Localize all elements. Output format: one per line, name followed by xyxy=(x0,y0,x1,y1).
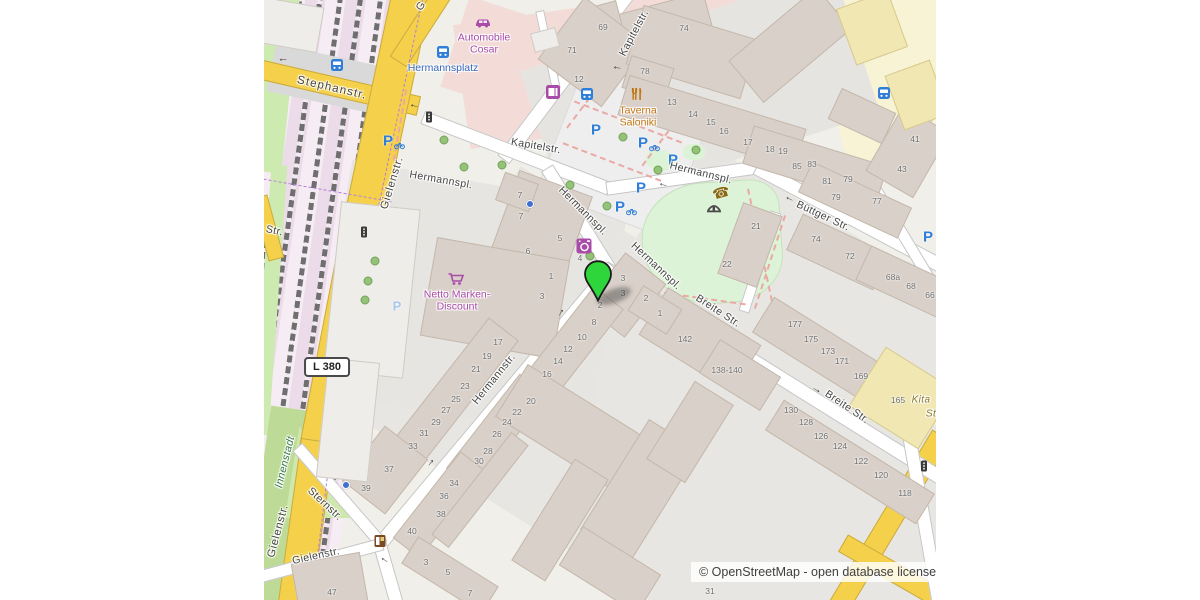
house-number: 68a xyxy=(886,272,900,282)
oneway-arrow-icon: → xyxy=(278,55,289,67)
tree-icon xyxy=(619,133,628,142)
tree-icon xyxy=(440,136,449,145)
house-number: 2 xyxy=(644,293,649,303)
tree-icon xyxy=(603,202,612,211)
house-number: 5 xyxy=(446,567,451,577)
oneway-arrow-icon: → xyxy=(407,100,420,114)
house-number: 74 xyxy=(811,234,820,244)
attribution-license-link[interactable]: © OpenStreetMap - open database license xyxy=(691,562,944,582)
laundry-icon xyxy=(577,239,592,254)
house-number: 175 xyxy=(804,334,818,344)
house-number: 21 xyxy=(471,364,480,374)
house-number: 77 xyxy=(872,196,881,206)
traffic-signal-icon xyxy=(426,112,432,123)
house-number: 40 xyxy=(407,526,416,536)
house-number: 118 xyxy=(898,488,912,498)
house-number: 6 xyxy=(526,246,531,256)
house-number: 34 xyxy=(449,478,458,488)
house-number: 22 xyxy=(512,407,521,417)
poi-label: Netto Marken-Discount xyxy=(424,289,491,314)
tree-icon xyxy=(460,163,469,172)
house-number: 120 xyxy=(874,470,888,480)
house-number: 12 xyxy=(563,344,572,354)
poi-label: AutomobileCosar xyxy=(458,32,511,57)
house-number: 10 xyxy=(577,332,586,342)
house-number: 74 xyxy=(679,23,688,33)
monument-icon xyxy=(705,201,723,214)
car-dealer-icon xyxy=(474,16,492,28)
house-number: 41 xyxy=(910,134,919,144)
house-number: 122 xyxy=(854,456,868,466)
street-name-label: Kita xyxy=(912,395,931,406)
shopping-cart-icon xyxy=(448,272,465,286)
house-number: 27 xyxy=(441,405,450,415)
house-number: 79 xyxy=(843,174,852,184)
house-number: 47 xyxy=(327,587,336,597)
house-number: 15 xyxy=(706,117,715,127)
house-number: 177 xyxy=(788,319,802,329)
house-number: 7 xyxy=(518,190,523,200)
house-number: 17 xyxy=(743,137,752,147)
tree-icon xyxy=(692,146,701,155)
house-number: 8 xyxy=(592,317,597,327)
house-number: 128 xyxy=(799,417,813,427)
parking-icon: P xyxy=(636,180,646,197)
house-number: 14 xyxy=(688,109,697,119)
house-number: 13 xyxy=(667,97,676,107)
house-number: 138-140 xyxy=(711,365,742,375)
house-number: 22 xyxy=(722,259,731,269)
house-number: 124 xyxy=(833,441,847,451)
house-number: 39 xyxy=(361,483,370,493)
tree-icon xyxy=(654,166,663,175)
restaurant-icon xyxy=(631,87,644,101)
house-number: 16 xyxy=(719,126,728,136)
house-number: 130 xyxy=(784,405,798,415)
parking-icon: P xyxy=(393,299,402,314)
poi-label: Hermannsplatz xyxy=(408,62,479,74)
house-number: 68 xyxy=(906,281,915,291)
house-number: 1 xyxy=(658,308,663,318)
tree-icon xyxy=(498,161,507,170)
house-number: 3 xyxy=(621,273,626,283)
house-number: 21 xyxy=(751,221,760,231)
parking-icon: P xyxy=(591,122,601,139)
house-number: 31 xyxy=(419,428,428,438)
bus-stop-icon xyxy=(437,46,449,58)
house-number: 66 xyxy=(925,290,934,300)
house-number: 171 xyxy=(835,356,849,366)
house-number: 142 xyxy=(678,334,692,344)
house-number: 69 xyxy=(598,22,607,32)
house-number: 7 xyxy=(468,588,473,598)
tree-icon xyxy=(364,277,373,286)
house-number: 18 xyxy=(765,144,774,154)
house-number: 17 xyxy=(493,337,502,347)
house-number: 19 xyxy=(482,351,491,361)
page-margin-right xyxy=(936,0,1200,600)
house-number: 26 xyxy=(492,429,501,439)
map-marker-icon[interactable] xyxy=(583,260,613,307)
house-number: 36 xyxy=(439,491,448,501)
tree-icon xyxy=(371,257,380,266)
parking-icon: P xyxy=(638,135,660,152)
traffic-signal-icon xyxy=(921,461,927,472)
house-number: 78 xyxy=(640,66,649,76)
house-number: 25 xyxy=(451,394,460,404)
traffic-signal-icon xyxy=(361,227,367,238)
house-number: 30 xyxy=(474,456,483,466)
house-number: 29 xyxy=(431,417,440,427)
house-number: 7 xyxy=(519,211,524,221)
house-number: 126 xyxy=(814,431,828,441)
kiosk-icon xyxy=(375,535,386,547)
bus-stop-icon xyxy=(581,88,593,100)
road-shield-l380: L 380 xyxy=(304,357,350,377)
house-number: 5 xyxy=(558,233,563,243)
house-number: 28 xyxy=(483,446,492,456)
house-number: 23 xyxy=(460,381,469,391)
house-number: 14 xyxy=(553,356,562,366)
house-number: 43 xyxy=(897,164,906,174)
house-number: 173 xyxy=(821,346,835,356)
oneway-arrow-icon: → xyxy=(611,62,624,75)
street-name-label: St xyxy=(926,409,936,420)
parking-icon: P xyxy=(615,199,637,216)
parking-icon: P xyxy=(383,133,405,150)
house-number: 169 xyxy=(854,371,868,381)
house-number: 24 xyxy=(502,417,511,427)
house-number: 165 xyxy=(891,395,905,405)
poi-dot-icon xyxy=(526,200,534,208)
house-number: 1 xyxy=(549,271,554,281)
poi-dot-icon xyxy=(342,481,350,489)
house-number: 3 xyxy=(424,557,429,567)
house-number: 4 xyxy=(578,253,583,263)
tree-icon xyxy=(361,296,370,305)
house-number: 3 xyxy=(540,291,545,301)
house-number: 19 xyxy=(778,146,787,156)
poi-label: TavernaSaloniki xyxy=(619,105,656,130)
house-number: 79 xyxy=(831,192,840,202)
house-number: 38 xyxy=(436,509,445,519)
house-number: 37 xyxy=(384,464,393,474)
telephone-icon: ☎ xyxy=(712,193,729,194)
page-margin-left xyxy=(0,0,264,600)
house-number: 72 xyxy=(845,251,854,261)
house-number: 31 xyxy=(705,586,714,596)
house-number: 20 xyxy=(526,396,535,406)
map-viewport[interactable]: →→→→→→→→→PPPPPPPP☎6971127478131415161718… xyxy=(0,0,1200,600)
house-number: 12 xyxy=(574,74,583,84)
house-number: 83 xyxy=(807,159,816,169)
newsagent-icon xyxy=(546,85,560,99)
house-number: 33 xyxy=(408,441,417,451)
house-number: 85 xyxy=(792,161,801,171)
house-number: 71 xyxy=(567,45,576,55)
bus-stop-icon xyxy=(331,59,343,71)
house-number: 16 xyxy=(542,369,551,379)
house-number: 81 xyxy=(822,176,831,186)
parking-icon: P xyxy=(923,229,933,246)
bus-stop-icon xyxy=(878,87,890,99)
